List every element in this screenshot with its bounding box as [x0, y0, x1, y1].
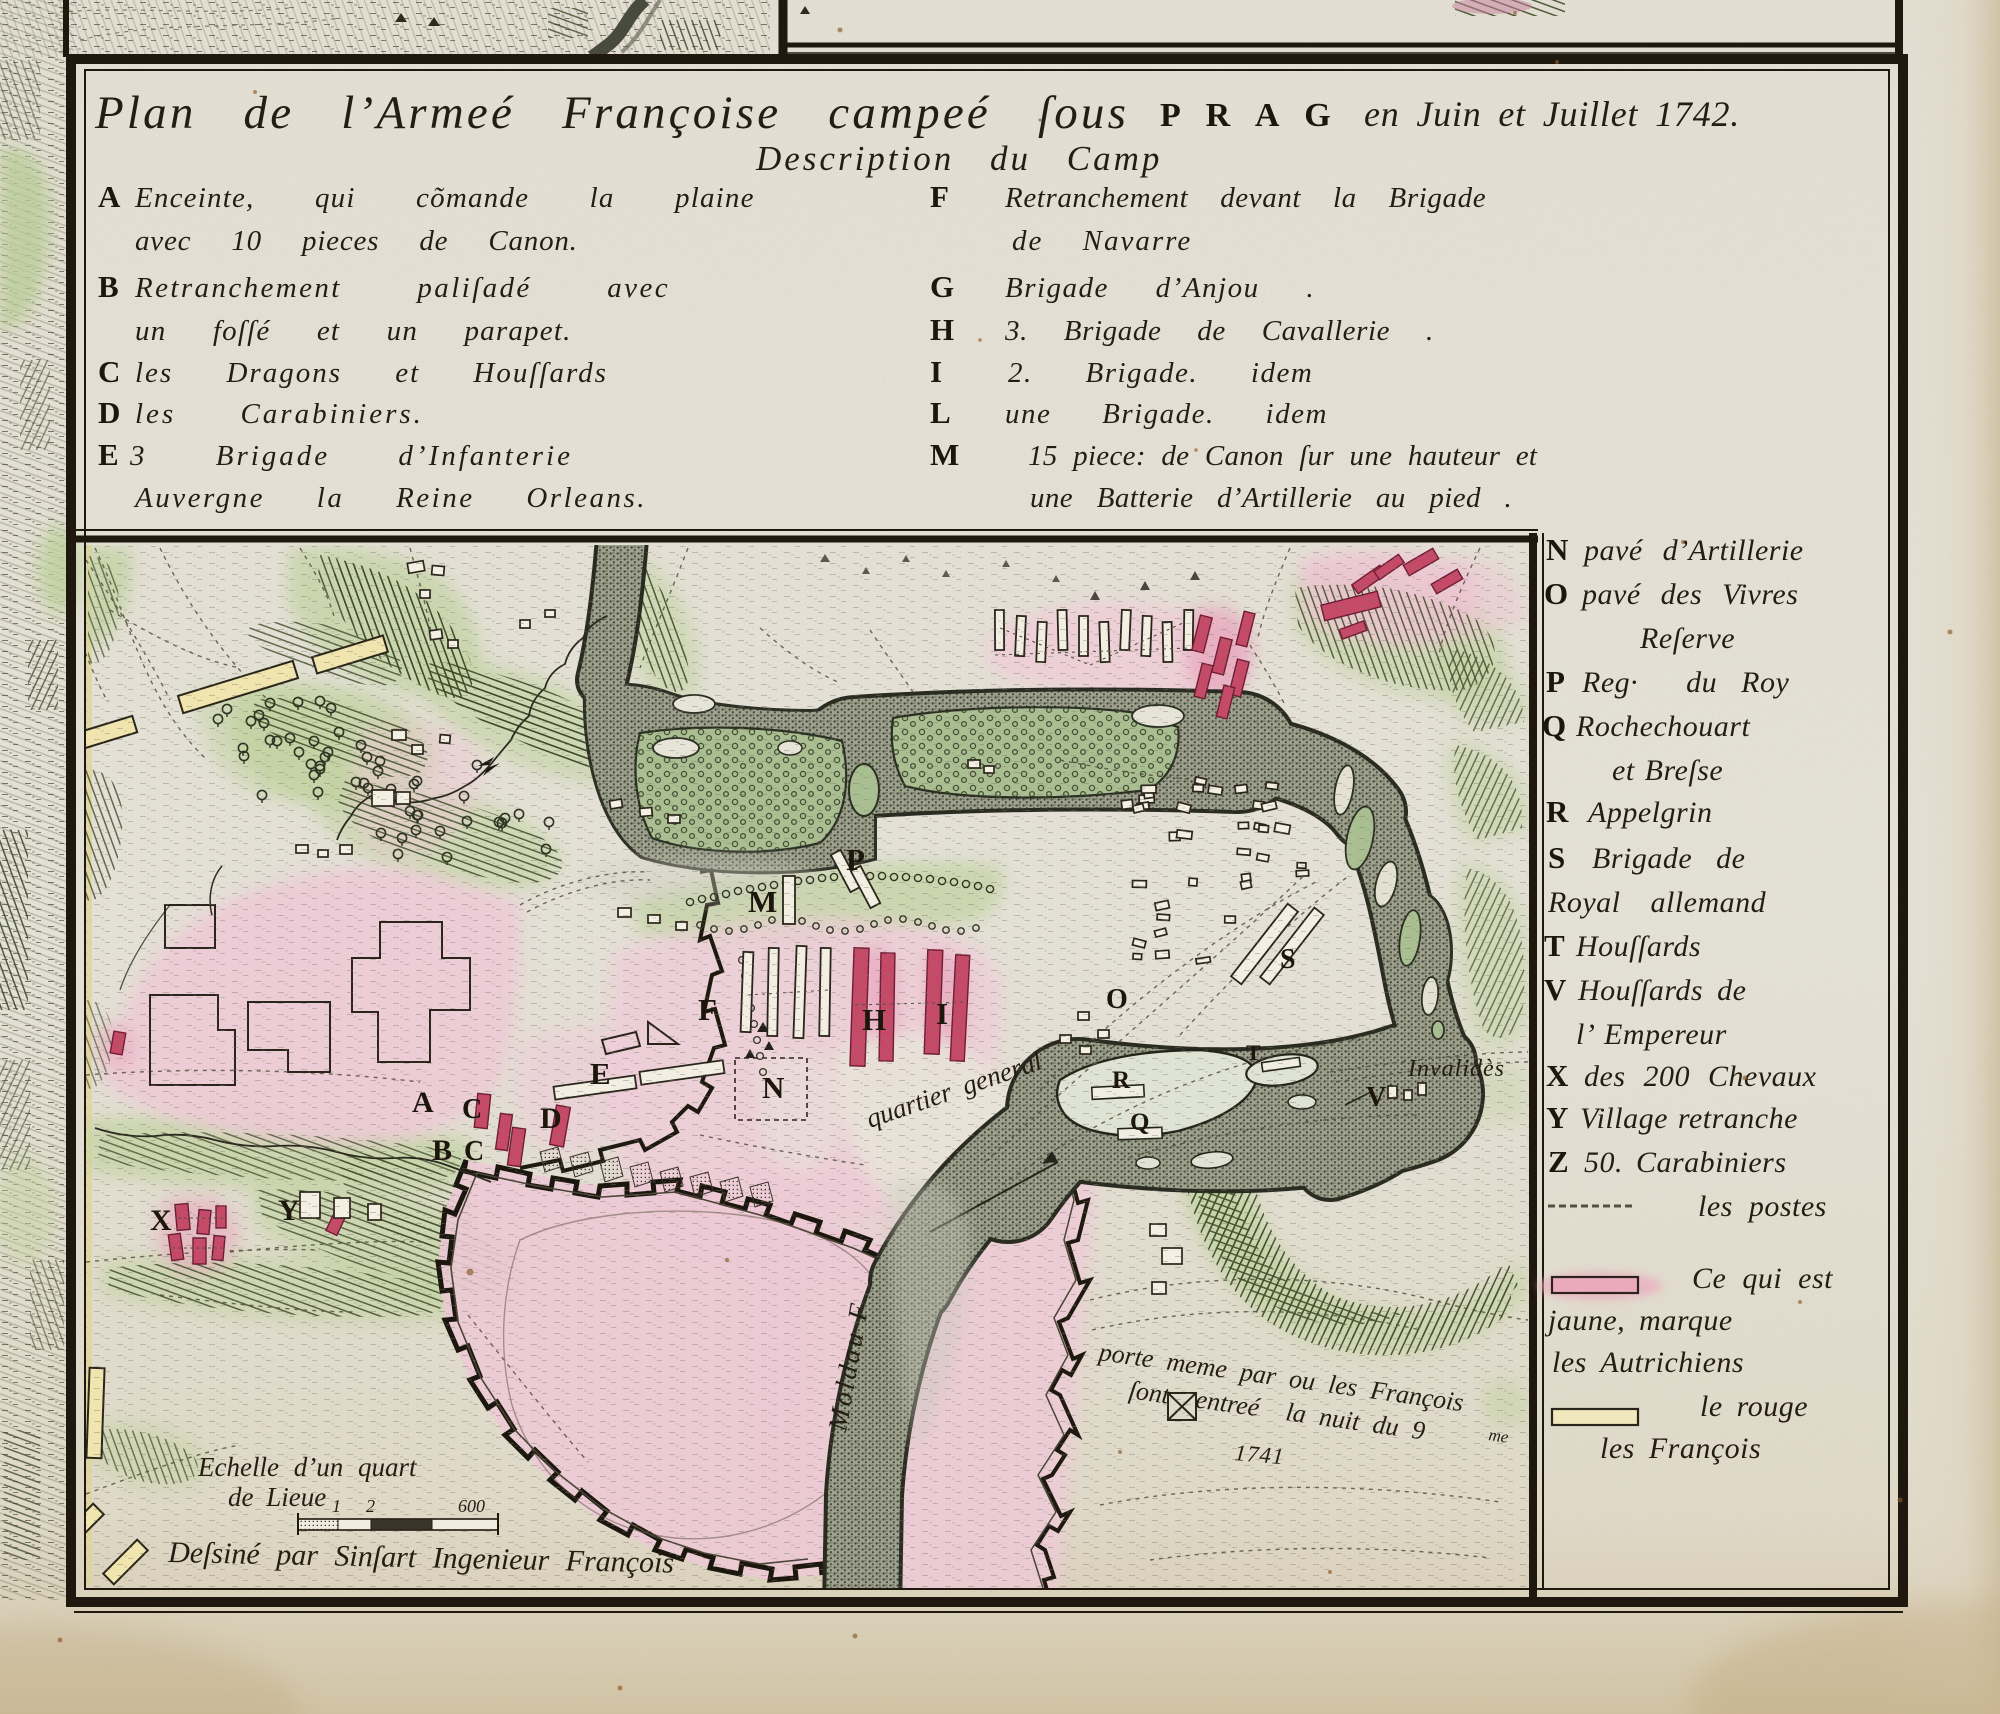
svg-text:G: G	[930, 269, 954, 304]
svg-text:N: N	[1546, 532, 1568, 567]
svg-text:600: 600	[458, 1496, 485, 1516]
svg-text:S: S	[1548, 840, 1565, 875]
svg-text:50. Carabiniers: 50. Carabiniers	[1584, 1146, 1787, 1179]
svg-text:les Carabiniers.: les Carabiniers.	[135, 398, 424, 430]
svg-text:les Dragons et Houſſards: les Dragons et Houſſards	[135, 357, 608, 389]
svg-text:F: F	[930, 179, 949, 214]
svg-text:Royal allemand: Royal allemand	[1547, 886, 1767, 919]
svg-text:Echelle d’un quart: Echelle d’un quart	[197, 1452, 418, 1482]
svg-text:A: A	[412, 1086, 434, 1119]
svg-text:2. Brigade. idem: 2. Brigade. idem	[1008, 357, 1313, 389]
svg-text:E: E	[590, 1056, 611, 1091]
svg-text:le rouge: le rouge	[1700, 1390, 1808, 1423]
svg-text:de Lieue: de Lieue	[228, 1482, 326, 1512]
svg-text:les Autrichiens: les Autrichiens	[1552, 1346, 1744, 1379]
svg-text:P: P	[1546, 664, 1565, 699]
svg-text:H: H	[930, 312, 954, 347]
svg-text:Reſerve: Reſerve	[1639, 622, 1735, 655]
svg-text:Retranchement paliſadé avec: Retranchement paliſadé avec	[134, 272, 670, 304]
svg-text:Ce qui est: Ce qui est	[1692, 1262, 1833, 1295]
svg-text:T: T	[1544, 928, 1565, 963]
svg-text:Q: Q	[1130, 1109, 1149, 1136]
svg-text:O: O	[1544, 576, 1568, 611]
svg-text:Houſſards de: Houſſards de	[1577, 974, 1746, 1007]
svg-text:et Breſse: et Breſse	[1612, 754, 1723, 787]
svg-text:jaune, marque: jaune, marque	[1544, 1304, 1733, 1337]
svg-text:S: S	[1280, 944, 1296, 975]
svg-text:Rochechouart: Rochechouart	[1575, 710, 1750, 743]
svg-text:L: L	[930, 395, 951, 430]
svg-text:en Juin et Juillet 1742.: en Juin et Juillet 1742.	[1364, 94, 1740, 134]
svg-text:les François: les François	[1600, 1432, 1761, 1465]
svg-text:D: D	[540, 1102, 562, 1135]
svg-text:V: V	[1366, 1082, 1386, 1113]
svg-text:I: I	[936, 996, 948, 1031]
svg-text:E: E	[98, 437, 119, 472]
svg-text:Village retranche: Village retranche	[1580, 1102, 1798, 1135]
svg-text:O: O	[1106, 984, 1128, 1015]
svg-text:A: A	[98, 179, 121, 214]
svg-text:M: M	[748, 884, 777, 919]
svg-text:C: C	[464, 1136, 484, 1167]
svg-text:F: F	[698, 992, 717, 1027]
svg-text:des 200 Chevaux: des 200 Chevaux	[1584, 1060, 1817, 1093]
svg-text:X: X	[150, 1204, 172, 1237]
svg-text:Invalidès: Invalidès	[1407, 1056, 1505, 1082]
svg-text:P R A G: P R A G	[1160, 97, 1340, 134]
svg-text:T: T	[1246, 1040, 1261, 1065]
svg-text:V: V	[1544, 972, 1567, 1007]
svg-text:les postes: les postes	[1698, 1190, 1827, 1223]
svg-text:R: R	[1546, 794, 1569, 829]
svg-text:3 Brigade d’Infanterie: 3 Brigade d’Infanterie	[129, 440, 573, 472]
svg-text:Description du Camp: Description du Camp	[755, 139, 1162, 178]
svg-text:I: I	[930, 354, 942, 389]
svg-text:Enceinte, qui cõmande la plai: Enceinte, qui cõmande la plaine	[134, 182, 755, 214]
svg-text:de Navarre: de Navarre	[1012, 225, 1192, 257]
svg-text:H: H	[862, 1002, 886, 1037]
svg-text:pavé des Vivres: pavé des Vivres	[1580, 578, 1798, 611]
svg-text:B: B	[432, 1134, 452, 1167]
svg-text:Z: Z	[1548, 1144, 1569, 1179]
svg-text:R: R	[1112, 1067, 1131, 1094]
svg-text:une Brigade. idem: une Brigade. idem	[1005, 398, 1328, 430]
svg-text:Y: Y	[1546, 1100, 1568, 1135]
svg-text:pavé d’Artillerie: pavé d’Artillerie	[1582, 534, 1804, 567]
svg-text:1741: 1741	[1234, 1440, 1286, 1469]
svg-text:Appelgrin: Appelgrin	[1586, 796, 1713, 829]
svg-text:Y: Y	[278, 1194, 300, 1227]
svg-text:Reg· du Roy: Reg· du Roy	[1581, 666, 1789, 699]
svg-text:1: 1	[332, 1496, 341, 1516]
svg-text:P: P	[846, 842, 865, 877]
svg-text:Q: Q	[1542, 708, 1566, 743]
svg-text:Plan de l’Armeé Françoise camp: Plan de l’Armeé Françoise campeé ſous	[94, 87, 1129, 139]
svg-text:M: M	[930, 437, 959, 472]
svg-text:N: N	[762, 1070, 784, 1105]
svg-text:me: me	[1487, 1425, 1510, 1447]
svg-text:Brigade de: Brigade de	[1592, 842, 1745, 875]
svg-text:Houſſards: Houſſards	[1575, 930, 1701, 963]
svg-text:3. Brigade de Cavallerie .: 3. Brigade de Cavallerie .	[1004, 315, 1434, 347]
svg-text:Brigade d’Anjou .: Brigade d’Anjou .	[1005, 272, 1315, 304]
svg-text:D: D	[98, 395, 120, 430]
svg-text:Retranchement devant la Brigad: Retranchement devant la Brigade	[1004, 182, 1486, 214]
svg-text:15 piece: de Canon ſur une hau: 15 piece: de Canon ſur une hauteur et	[1028, 440, 1538, 472]
svg-text:2: 2	[366, 1496, 375, 1516]
svg-text:C: C	[462, 1094, 482, 1125]
svg-text:C: C	[98, 354, 120, 389]
svg-text:X: X	[1546, 1058, 1569, 1093]
svg-text:Auvergne la Reine Orleans.: Auvergne la Reine Orleans.	[133, 482, 647, 514]
svg-text:un foſſé et un parapet.: un foſſé et un parapet.	[135, 315, 572, 347]
svg-text:l’ Empereur: l’ Empereur	[1576, 1018, 1727, 1051]
svg-text:avec 10 pieces de Canon.: avec 10 pieces de Canon.	[135, 225, 578, 257]
svg-text:B: B	[98, 269, 119, 304]
svg-text:une Batterie d’Artillerie au p: une Batterie d’Artillerie au pied .	[1030, 482, 1512, 514]
